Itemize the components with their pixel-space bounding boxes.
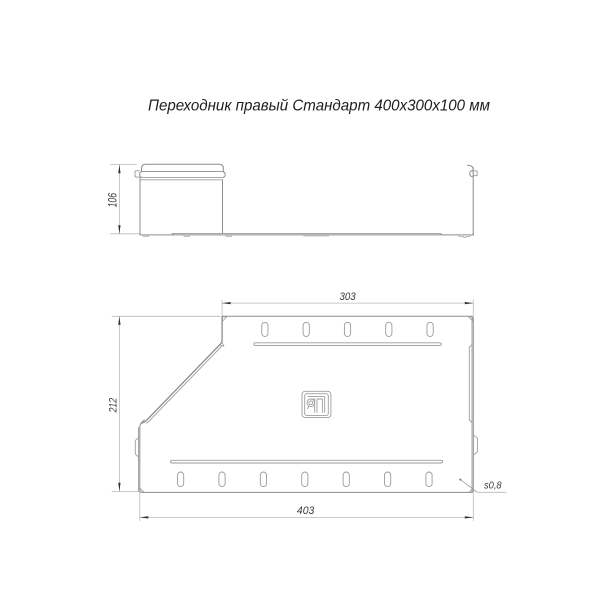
svg-text:212: 212 <box>107 397 119 413</box>
svg-text:s0,8: s0,8 <box>484 480 502 491</box>
svg-text:106: 106 <box>107 193 120 208</box>
svg-text:403: 403 <box>297 505 315 517</box>
svg-text:Переходник правый Стандарт 400: Переходник правый Стандарт 400х300х100 м… <box>148 97 490 114</box>
svg-text:303: 303 <box>340 291 357 303</box>
